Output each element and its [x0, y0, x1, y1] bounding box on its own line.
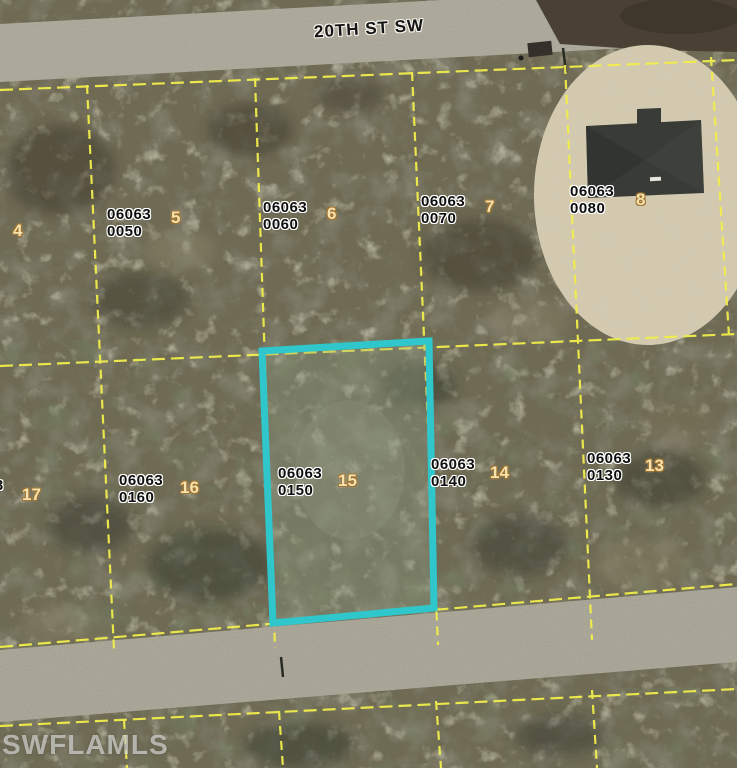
parcel-strap-0080: 06063 0080 — [570, 183, 614, 217]
lot-number-4: 4 — [13, 221, 22, 241]
strap-book: 06063 — [570, 183, 614, 200]
strap-book: 06063 — [587, 450, 631, 467]
lot-number-13: 13 — [645, 456, 664, 476]
strap-lot-code: 0150 — [278, 482, 313, 499]
parcel-strap-0130: 06063 0130 — [587, 450, 631, 484]
strap-lot-code: 0060 — [263, 216, 298, 233]
strap-book: 06063 — [278, 465, 322, 482]
parcel-strap-0050: 06063 0050 — [107, 206, 151, 240]
mls-watermark: SWFLAMLS — [2, 729, 169, 761]
parcel-strap-0160: 06063 0160 — [119, 472, 163, 506]
lot-number-5: 5 — [171, 208, 180, 228]
strap-book: 06063 — [263, 199, 307, 216]
mailbox-dot — [519, 56, 524, 61]
lot-number-6: 6 — [327, 204, 336, 224]
strap-lot-code: 0130 — [587, 467, 622, 484]
lot-number-16: 16 — [180, 478, 199, 498]
strap-book: 06063 — [119, 472, 163, 489]
strap-lot-code: 0160 — [119, 489, 154, 506]
parcel-strap-0150: 06063 0150 — [278, 465, 322, 499]
lot-number-17: 17 — [22, 485, 41, 505]
parcel-strap-0070: 06063 0070 — [421, 193, 465, 227]
lot-number-7: 7 — [485, 197, 494, 217]
strap-lot-code: 0080 — [570, 200, 605, 217]
strap-book: 06063 — [421, 193, 465, 210]
strap-lot-code: 0140 — [431, 473, 466, 490]
lot-number-14: 14 — [490, 463, 509, 483]
aerial-parcel-map: 20TH ST SW 3 4 06063 0050 5 06063 0060 6… — [0, 0, 737, 768]
dirt-area — [536, 0, 737, 52]
strap-lot-code: 0050 — [107, 223, 142, 240]
strap-book-fragment: 63 — [0, 477, 4, 494]
lot-number-15: 15 — [338, 471, 357, 491]
parcel-strap-0060: 06063 0060 — [263, 199, 307, 233]
strap-book: 06063 — [431, 456, 475, 473]
roof-vent — [650, 177, 661, 182]
lot-number-8: 8 — [636, 190, 645, 210]
strap-lot-code: 0070 — [421, 210, 456, 227]
culvert-object — [527, 41, 552, 57]
strap-book: 06063 — [107, 206, 151, 223]
map-base-layer — [0, 0, 737, 768]
parcel-strap-0170-fragment: 63 0 — [0, 477, 4, 511]
parcel-strap-0140: 06063 0140 — [431, 456, 475, 490]
